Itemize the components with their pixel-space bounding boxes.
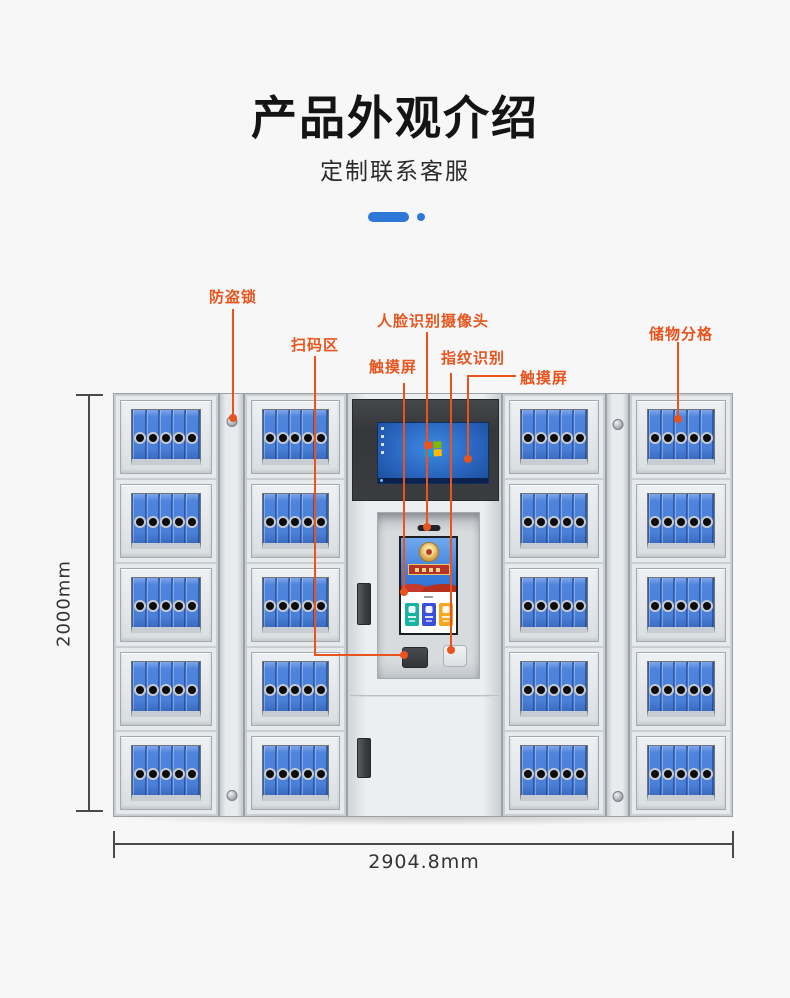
file-binder: [133, 662, 145, 711]
locker-door: [251, 484, 340, 558]
binder-hole: [136, 686, 144, 694]
locker-door: [120, 568, 212, 642]
binder-hole: [651, 686, 659, 694]
binder-hole: [651, 602, 659, 610]
file-binder: [173, 410, 185, 459]
anti-theft-lock-icon: [612, 791, 623, 802]
police-badge-icon: [419, 542, 439, 562]
file-binder: [290, 494, 302, 543]
file-binder: [662, 410, 674, 459]
locker-door: [251, 652, 340, 726]
file-binder: [315, 494, 327, 543]
file-binder: [147, 578, 159, 627]
door-window: [262, 661, 330, 717]
binder-hole: [175, 518, 183, 526]
binder-hole: [703, 518, 711, 526]
file-binder: [574, 578, 586, 627]
file-binder: [147, 662, 159, 711]
binder-hole: [266, 686, 274, 694]
height-dimension-label: 2000mm: [50, 395, 78, 812]
door-handle: [357, 583, 371, 625]
leader-dot: [400, 651, 408, 659]
binder-hole: [149, 602, 157, 610]
file-binder: [302, 410, 314, 459]
file-binder: [133, 746, 145, 795]
binder-hole: [690, 602, 698, 610]
door-handle: [357, 738, 371, 778]
binder-hole: [576, 602, 584, 610]
file-binder: [522, 494, 534, 543]
binder-hole: [664, 602, 672, 610]
anti-theft-lock-icon: [226, 790, 237, 801]
door-window: [520, 661, 589, 717]
file-binder: [186, 410, 198, 459]
file-binder: [649, 410, 661, 459]
binder-hole: [550, 602, 558, 610]
leader-line: [467, 375, 516, 377]
binder-hole: [524, 686, 532, 694]
binder-hole: [175, 602, 183, 610]
file-binder: [290, 662, 302, 711]
locker-compartment: [247, 480, 344, 562]
file-binder: [675, 494, 687, 543]
binder-hole: [136, 602, 144, 610]
door-window: [131, 493, 201, 549]
file-binder: [264, 494, 276, 543]
binder-hole: [279, 518, 287, 526]
binder-hole: [317, 770, 325, 778]
leader-line: [314, 654, 404, 656]
file-binder: [173, 662, 185, 711]
file-binder: [649, 578, 661, 627]
locker-door: [251, 400, 340, 474]
door-window: [131, 661, 201, 717]
locker-compartment: [632, 396, 730, 478]
locker-compartment: [116, 732, 216, 814]
file-binder: [548, 578, 560, 627]
height-dimension-line: [88, 395, 90, 812]
height-dimension-tick-top: [76, 394, 103, 396]
locker-door: [251, 736, 340, 810]
binder-hole: [703, 434, 711, 442]
binder-hole: [563, 518, 571, 526]
file-binder: [548, 494, 560, 543]
file-binder: [688, 410, 700, 459]
leader-line: [232, 309, 234, 418]
locker-door: [120, 400, 212, 474]
binder-hole: [317, 434, 325, 442]
binder-hole: [149, 518, 157, 526]
binder-hole: [677, 686, 685, 694]
file-binder: [315, 410, 327, 459]
binder-hole: [537, 602, 545, 610]
locker-door: [509, 652, 599, 726]
binder-hole: [576, 518, 584, 526]
leader-dot: [674, 415, 682, 423]
file-binder: [277, 578, 289, 627]
taskbar: [378, 478, 488, 483]
console-door-seam: [350, 695, 499, 697]
file-binder: [561, 410, 573, 459]
binder-hole: [563, 686, 571, 694]
locker-door: [636, 736, 726, 810]
locker-door: [120, 652, 212, 726]
binder-hole: [317, 518, 325, 526]
file-binder: [561, 578, 573, 627]
locker-column-1: [113, 393, 219, 817]
binder-hole: [188, 770, 196, 778]
kiosk-splash-area: [401, 538, 456, 592]
binder-hole: [690, 434, 698, 442]
binder-hole: [677, 770, 685, 778]
file-binder: [186, 662, 198, 711]
leader-line: [426, 332, 428, 527]
binder-hole: [550, 518, 558, 526]
file-binder: [290, 746, 302, 795]
divider-bar: [368, 212, 409, 222]
locker-door: [509, 484, 599, 558]
binder-hole: [136, 770, 144, 778]
binder-hole: [266, 602, 274, 610]
file-binder: [173, 494, 185, 543]
binder-hole: [149, 686, 157, 694]
binder-hole: [576, 434, 584, 442]
file-binder: [574, 494, 586, 543]
file-binder: [160, 410, 172, 459]
locker-door: [120, 484, 212, 558]
file-binder: [186, 578, 198, 627]
door-window: [520, 493, 589, 549]
locker-compartment: [247, 564, 344, 646]
binder-hole: [677, 602, 685, 610]
file-binder: [535, 662, 547, 711]
file-binder: [688, 662, 700, 711]
leader-dot: [423, 523, 431, 531]
binder-hole: [304, 686, 312, 694]
door-window: [262, 745, 330, 801]
file-binder: [561, 746, 573, 795]
locker-compartment: [632, 732, 730, 814]
binder-hole: [550, 770, 558, 778]
file-binder: [277, 662, 289, 711]
leader-line: [677, 342, 679, 419]
file-binder: [548, 746, 560, 795]
locker-compartment: [632, 564, 730, 646]
binder-hole: [690, 686, 698, 694]
smart-file-cabinet: [113, 393, 733, 817]
locker-compartment: [505, 396, 603, 478]
binder-hole: [291, 770, 299, 778]
binder-hole: [266, 518, 274, 526]
file-binder: [522, 578, 534, 627]
door-window: [520, 409, 589, 465]
file-binder: [264, 746, 276, 795]
binder-hole: [291, 602, 299, 610]
leader-dot: [229, 414, 237, 422]
file-binder: [522, 746, 534, 795]
binder-hole: [188, 518, 196, 526]
file-binder: [147, 746, 159, 795]
door-window: [131, 409, 201, 465]
binder-hole: [162, 770, 170, 778]
file-binder: [535, 746, 547, 795]
width-dimension-tick-right: [732, 831, 734, 858]
file-binder: [561, 494, 573, 543]
callout-fingerprint: 指纹识别: [441, 347, 505, 368]
callout-face-camera: 人脸识别摄像头: [377, 310, 489, 331]
locker-compartment: [505, 732, 603, 814]
page-subtitle: 定制联系客服: [0, 152, 790, 186]
binder-hole: [651, 434, 659, 442]
file-binder: [160, 746, 172, 795]
file-binder: [675, 662, 687, 711]
file-binder: [302, 578, 314, 627]
locker-compartment: [505, 480, 603, 562]
locker-column-3: [502, 393, 606, 817]
door-window: [520, 745, 589, 801]
binder-hole: [136, 518, 144, 526]
file-binder: [290, 578, 302, 627]
lock-strip-1: [219, 393, 244, 817]
file-binder: [277, 410, 289, 459]
binder-hole: [576, 770, 584, 778]
file-binder: [186, 494, 198, 543]
anti-theft-lock-icon: [612, 419, 623, 430]
file-binder: [315, 578, 327, 627]
binder-hole: [550, 686, 558, 694]
binder-hole: [162, 602, 170, 610]
callout-touchscreen-right: 触摸屏: [520, 367, 568, 388]
kiosk-banner: [408, 564, 450, 575]
height-dimension-tick-bottom: [76, 810, 103, 812]
kiosk-app-buttons: [401, 601, 456, 626]
binder-hole: [664, 770, 672, 778]
locker-door: [636, 652, 726, 726]
binder-hole: [550, 434, 558, 442]
file-binder: [133, 494, 145, 543]
binder-hole: [162, 518, 170, 526]
locker-door: [636, 484, 726, 558]
door-window: [262, 577, 330, 633]
file-binder: [522, 662, 534, 711]
file-binder: [186, 746, 198, 795]
locker-door: [509, 400, 599, 474]
binder-hole: [317, 602, 325, 610]
locker-compartment: [247, 396, 344, 478]
binder-hole: [524, 602, 532, 610]
divider-dot: [417, 213, 425, 221]
binder-hole: [279, 770, 287, 778]
width-dimension-line: [114, 843, 734, 845]
binder-hole: [703, 686, 711, 694]
locker-door: [636, 400, 726, 474]
binder-hole: [291, 518, 299, 526]
locker-door: [251, 568, 340, 642]
file-binder: [535, 410, 547, 459]
width-dimension-label: 2904.8mm: [114, 851, 734, 873]
lock-strip-2: [606, 393, 629, 817]
product-appearance-page: 产品外观介绍 定制联系客服 2000mm 2904.8mm: [0, 0, 790, 998]
file-binder: [173, 746, 185, 795]
locker-compartment: [632, 480, 730, 562]
leader-line: [467, 375, 469, 459]
kiosk-caption: [401, 592, 456, 601]
locker-door: [509, 736, 599, 810]
locker-column-2: [244, 393, 347, 817]
binder-hole: [703, 602, 711, 610]
kiosk-app-retrieve-icon: [422, 603, 436, 626]
binder-hole: [188, 686, 196, 694]
file-binder: [701, 410, 713, 459]
file-binder: [548, 662, 560, 711]
width-dimension-tick-left: [113, 831, 115, 858]
file-binder: [277, 746, 289, 795]
binder-hole: [149, 770, 157, 778]
binder-hole: [304, 434, 312, 442]
binder-hole: [677, 434, 685, 442]
file-binder: [688, 494, 700, 543]
binder-hole: [576, 686, 584, 694]
binder-hole: [175, 686, 183, 694]
file-binder: [649, 494, 661, 543]
desktop-icons: [381, 427, 384, 457]
binder-hole: [291, 686, 299, 694]
file-binder: [675, 746, 687, 795]
locker-compartment: [247, 732, 344, 814]
locker-compartment: [116, 480, 216, 562]
control-console: [347, 393, 502, 817]
binder-hole: [266, 770, 274, 778]
file-binder: [277, 494, 289, 543]
file-binder: [688, 746, 700, 795]
binder-hole: [703, 770, 711, 778]
file-binder: [649, 662, 661, 711]
binder-hole: [537, 770, 545, 778]
callout-touchscreen-left: 触摸屏: [369, 356, 417, 377]
binder-hole: [149, 434, 157, 442]
binder-hole: [162, 686, 170, 694]
file-binder: [574, 410, 586, 459]
leader-dot: [447, 646, 455, 654]
leader-line: [314, 356, 316, 656]
file-binder: [302, 494, 314, 543]
locker-column-4: [629, 393, 733, 817]
file-binder: [662, 662, 674, 711]
binder-hole: [664, 686, 672, 694]
door-window: [262, 409, 330, 465]
binder-hole: [304, 518, 312, 526]
door-window: [520, 577, 589, 633]
binder-hole: [524, 518, 532, 526]
file-binder: [574, 746, 586, 795]
locker-compartment: [505, 648, 603, 730]
binder-hole: [188, 434, 196, 442]
binder-hole: [690, 770, 698, 778]
file-binder: [133, 410, 145, 459]
page-title: 产品外观介绍: [0, 82, 790, 148]
windows-desktop-screen: [377, 422, 489, 484]
binder-hole: [537, 686, 545, 694]
leader-dot: [464, 455, 472, 463]
binder-hole: [162, 434, 170, 442]
leader-dot: [400, 588, 408, 596]
binder-hole: [651, 770, 659, 778]
callout-anti-theft-lock: 防盗锁: [209, 286, 257, 307]
file-binder: [701, 746, 713, 795]
door-window: [647, 661, 716, 717]
file-binder: [264, 578, 276, 627]
binder-hole: [317, 686, 325, 694]
binder-hole: [524, 770, 532, 778]
file-binder: [315, 662, 327, 711]
binder-hole: [677, 518, 685, 526]
binder-hole: [563, 434, 571, 442]
binder-hole: [266, 434, 274, 442]
file-binder: [160, 662, 172, 711]
file-binder: [688, 578, 700, 627]
leader-line: [403, 383, 405, 592]
file-binder: [160, 578, 172, 627]
binder-hole: [279, 434, 287, 442]
callout-scan-area: 扫码区: [291, 334, 339, 355]
binder-hole: [304, 770, 312, 778]
door-window: [262, 493, 330, 549]
locker-compartment: [505, 564, 603, 646]
binder-hole: [524, 434, 532, 442]
binder-hole: [651, 518, 659, 526]
file-binder: [133, 578, 145, 627]
binder-hole: [537, 518, 545, 526]
locker-compartment: [116, 564, 216, 646]
locker-door: [509, 568, 599, 642]
binder-hole: [563, 770, 571, 778]
binder-hole: [279, 686, 287, 694]
binder-hole: [175, 434, 183, 442]
file-binder: [302, 746, 314, 795]
locker-compartment: [632, 648, 730, 730]
door-window: [131, 577, 201, 633]
file-binder: [535, 494, 547, 543]
binder-hole: [136, 434, 144, 442]
locker-compartment: [116, 648, 216, 730]
binder-hole: [664, 434, 672, 442]
file-binder: [160, 494, 172, 543]
door-window: [131, 745, 201, 801]
door-window: [647, 493, 716, 549]
leader-line: [450, 373, 452, 650]
file-binder: [548, 410, 560, 459]
locker-door: [636, 568, 726, 642]
file-binder: [535, 578, 547, 627]
binder-hole: [188, 602, 196, 610]
file-binder: [662, 494, 674, 543]
callout-storage-compartment: 储物分格: [649, 323, 713, 344]
file-binder: [290, 410, 302, 459]
file-binder: [264, 410, 276, 459]
file-binder: [302, 662, 314, 711]
file-binder: [561, 662, 573, 711]
file-binder: [173, 578, 185, 627]
file-binder: [147, 494, 159, 543]
binder-hole: [537, 434, 545, 442]
file-binder: [649, 746, 661, 795]
file-binder: [315, 746, 327, 795]
file-binder: [701, 662, 713, 711]
door-window: [647, 577, 716, 633]
binder-hole: [175, 770, 183, 778]
file-binder: [675, 578, 687, 627]
binder-hole: [690, 518, 698, 526]
